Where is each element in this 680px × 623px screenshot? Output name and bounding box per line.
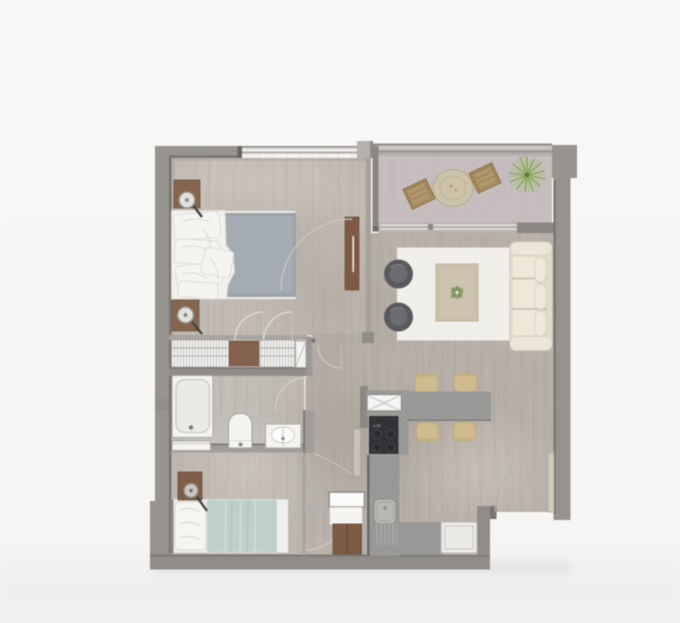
svg-text:4.05: 4.05	[373, 423, 382, 428]
